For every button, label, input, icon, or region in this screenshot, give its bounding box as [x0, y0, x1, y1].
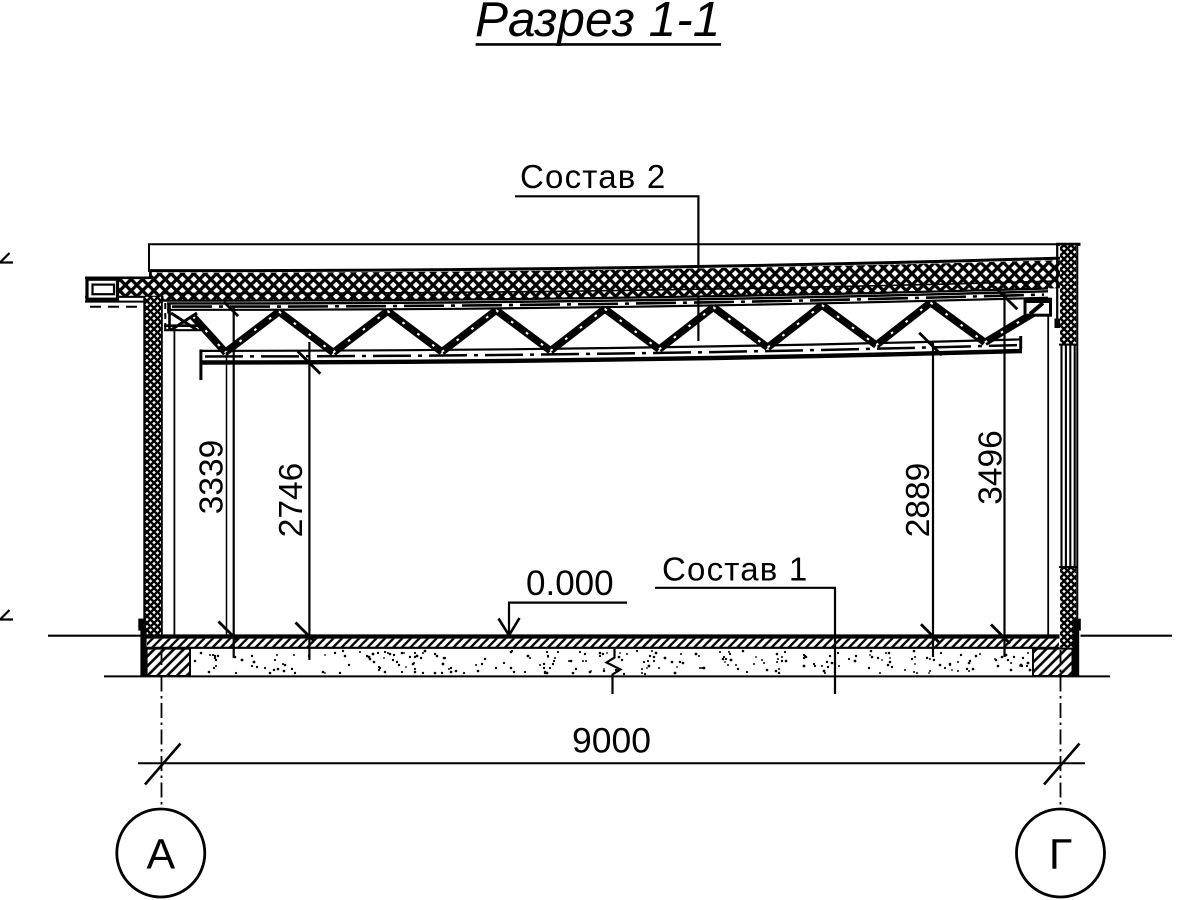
svg-text:9000: 9000: [572, 721, 651, 761]
svg-text:0.000: 0.000: [526, 564, 614, 603]
svg-text:Состав 1: Состав 1: [662, 551, 808, 588]
svg-text:Разрез 1-1: Разрез 1-1: [475, 0, 720, 47]
svg-text:Г: Г: [1049, 831, 1072, 879]
svg-text:Состав 2: Состав 2: [520, 158, 666, 195]
svg-text:А: А: [146, 831, 175, 879]
svg-text:3496: 3496: [973, 430, 1010, 505]
svg-text:3339: 3339: [193, 440, 230, 515]
svg-text:2746: 2746: [273, 463, 310, 538]
svg-text:2889: 2889: [900, 463, 937, 538]
